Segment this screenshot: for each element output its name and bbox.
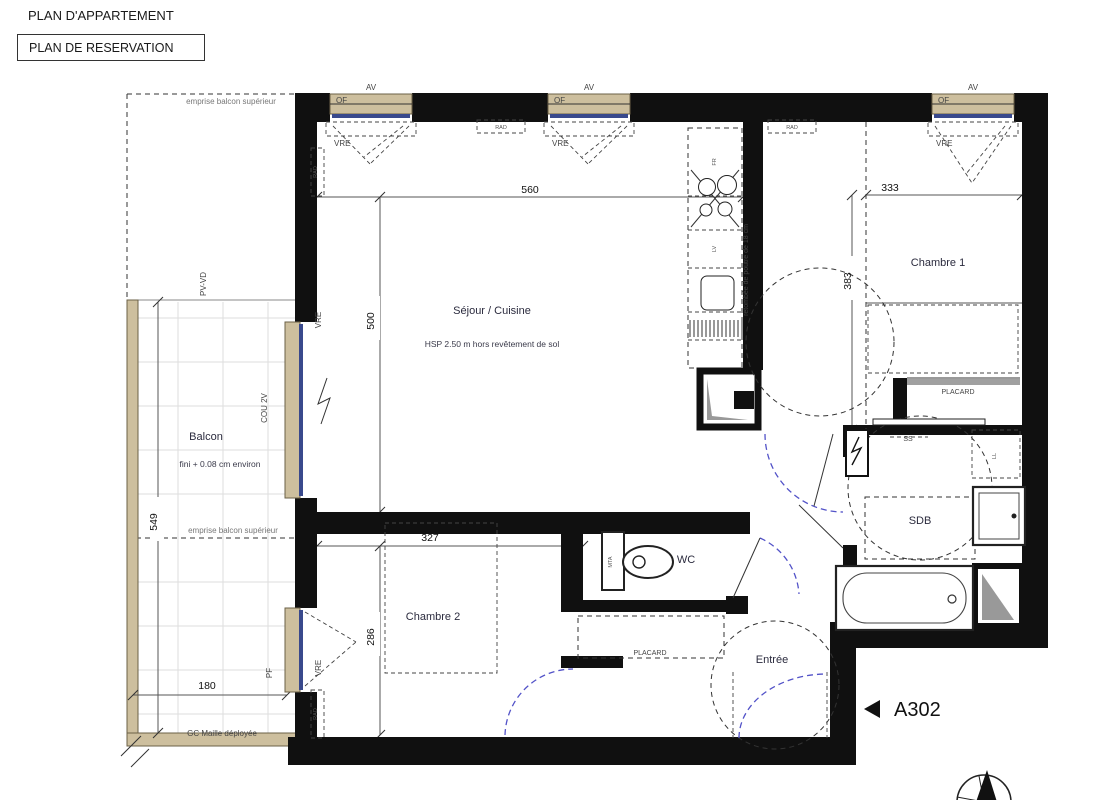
radiator-label: RAD [495,125,507,131]
pf-label: PF [265,668,274,678]
av-label: AV [968,83,979,92]
ll-label: LL [992,453,998,459]
pvvd-label: PV-VD [199,272,208,296]
reservation-plan-box: PLAN DE RESERVATION [17,34,205,61]
mta-label: MTA [608,556,614,568]
kitchen-vent-hatch [690,320,742,337]
sejour-hall-door-arc [765,434,843,512]
wall-right [1022,93,1048,648]
wc-details [578,532,724,658]
bathtub [836,566,973,630]
compass-icon [957,770,1011,800]
kitchen-sink [701,276,734,310]
av-label: AV [584,83,595,92]
placard-chambre1-label: PLACARD [941,389,974,396]
dim-sejour-height: 500 [365,312,377,330]
vre-label: VRE [552,139,568,148]
vre-label: VRE [314,660,323,676]
entry-door-arc [739,674,827,738]
balcon-label: Balcon [189,431,223,443]
chambre2-details [385,523,573,735]
reservation-plan-label: PLAN DE RESERVATION [18,41,173,55]
kitchen-counter: FR LV retombée de poutre de 18 cm [688,128,750,368]
vre-label: VRE [334,139,350,148]
balcony-rail-left [127,300,138,746]
window-chambre2 [285,608,356,692]
sliding-direction-icon [318,378,330,424]
walls [288,93,1048,765]
unit-marker: A302 [864,699,941,721]
radiator-label: RAD [313,166,319,178]
electrical-niche [846,430,868,476]
entree-turning-circle [711,621,839,749]
placard1-rail [907,379,1020,385]
of-label: OF [336,96,347,105]
dim-balcon-height: 549 [148,513,160,531]
plan-title: PLAN D'APPARTEMENT [28,8,328,23]
beam-note: retombée de poutre de 18 cm [743,224,750,316]
dim-balcon-width: 180 [198,680,216,692]
dim-sejour-width: 560 [521,184,539,196]
location-arrow-icon [864,700,880,718]
floor-plan-drawing: RAD RAD RAD RAD FR LV retombée de poutre… [0,0,1108,800]
chambre1-label: Chambre 1 [911,257,965,269]
gc-note: GC Maille déployée [187,729,257,738]
wall-bottom [288,737,856,765]
sejour-label: Séjour / Cuisine [453,305,531,317]
dim-chambre2-height: 286 [365,628,377,646]
radiator-label: RAD [313,708,319,720]
hall-turning-circle [746,268,894,416]
balcony-upper-outline [127,94,300,737]
wc-door-arc [760,538,799,594]
wall-left-upper [295,93,317,322]
emprise-note-mid: emprise balcon supérieur [188,526,278,535]
entree-label: Entrée [756,654,788,666]
sdb-turning-circle [848,416,992,560]
fridge-label: FR [712,158,718,165]
chambre2-label: Chambre 2 [406,611,460,623]
wall-left-lower [295,690,317,765]
toilet-bowl [623,546,673,578]
wc-label: WC [677,554,695,566]
towel-dryer [873,419,985,425]
radiator-label: RAD [786,125,798,131]
wall-wc-bottom [561,600,731,612]
chambre2-door-arc [505,669,573,735]
dishwasher-label: LV [712,246,718,253]
vre-label: VRE [936,139,952,148]
placard-hall-label: PLACARD [633,650,666,657]
dim-chambre2-width: 327 [421,532,439,544]
dim-chambre1-width: 333 [881,182,899,194]
sejour-hall-door-leaf [814,434,833,506]
chambre1-details [866,122,1022,430]
floor-plan-page: PLAN D'APPARTEMENT PLAN DE RESERVATION [0,0,1108,800]
of-label: OF [554,96,565,105]
dim-chambre1-height: 383 [842,272,854,290]
emprise-note-top: emprise balcon supérieur [186,97,276,106]
sdb-label: SDB [909,515,932,527]
vre-label: VRE [314,312,323,328]
cou2v-label: COU 2V [260,392,269,422]
wc-door-leaf [733,538,760,598]
shaft-kitchen [700,371,758,427]
wall-sejour-divider [295,512,750,534]
of-label: OF [938,96,949,105]
sejour-note: HSP 2.50 m hors revêtement de sol [425,339,560,349]
shaft-sdb [975,566,1022,626]
wall-ch2-wc [561,534,583,610]
ss-label: SS [903,436,913,443]
av-label: AV [366,83,377,92]
wall-entree-wc-stub [726,596,748,614]
unit-label: A302 [894,699,941,721]
washbasin [973,487,1025,545]
balcon-note: fini + 0.08 cm environ [179,459,260,469]
